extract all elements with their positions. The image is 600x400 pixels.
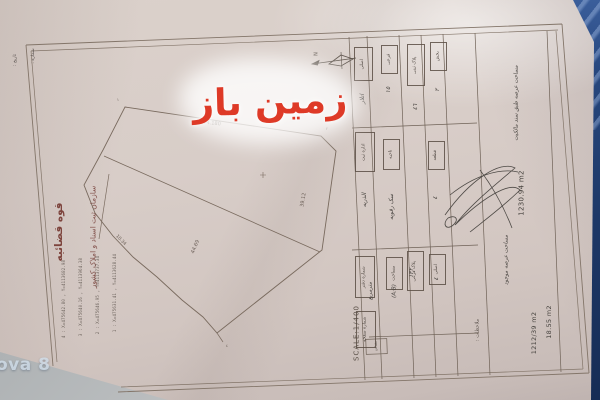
- cell-value: الذریه: [362, 193, 368, 207]
- table-cell-box: ناحیه: [383, 139, 400, 170]
- cell-label: مساحت: [392, 266, 397, 281]
- cell-label: پلاک ثبتی: [414, 56, 419, 73]
- area-value-3: 1212/39 m2: [531, 312, 538, 355]
- area-value-1: 1230.94 m2: [519, 170, 526, 215]
- area-note-1: مساحت عرصه طبق سند مالکیت: [514, 65, 520, 140]
- cell-value: ٤: [434, 277, 440, 280]
- scale-text: SCALE:1/400: [354, 305, 361, 361]
- vertex-mark: ٢: [326, 127, 328, 131]
- table-cell-box: پلاک ثبتی: [407, 44, 425, 86]
- cell-value: ١٣٢: [409, 268, 415, 278]
- cell-value: ١٥: [386, 87, 392, 93]
- cell-label: ناحیه: [389, 150, 394, 159]
- area-note-2: مساحت عرصه موجود: [504, 235, 510, 285]
- vertex-mark: ١: [117, 98, 119, 102]
- cell-label: شماره صفحه: [364, 317, 369, 342]
- cell-label: بخش: [436, 52, 441, 62]
- table-cell-box: اصلی: [354, 47, 373, 81]
- date-label: تاریخ :: [14, 54, 19, 66]
- cell-value: مترمربع: [368, 282, 374, 300]
- plot-polygon: [84, 107, 336, 342]
- table-cell-box: اداره ثبت: [355, 132, 375, 172]
- cell-label: اصلی: [361, 59, 366, 69]
- compass-north-label: N: [315, 52, 320, 56]
- cell-value: ٤٦: [413, 104, 419, 110]
- table-cell-box: قطعه: [428, 141, 445, 170]
- remarks-label: ملاحظات :: [476, 319, 481, 341]
- table-cell-box: فرعی: [381, 45, 398, 74]
- cell-label: فرعی: [387, 54, 392, 65]
- cell-label: اصلی: [435, 264, 440, 274]
- cell-value: ٤: [433, 196, 439, 199]
- letterhead-line-1: قوه قضائیه: [54, 202, 65, 261]
- coordinate-row: 4 : X=475642.80 , Y=4113682.98: [62, 260, 66, 338]
- scale-box-label: مقیاس: [374, 341, 378, 351]
- cell-value: سک رقویه: [389, 194, 395, 220]
- table-cell-box: بخش: [430, 42, 447, 71]
- number-label: شماره :: [32, 48, 37, 63]
- coordinate-row: 3 : X=475640.16 , Y=4113964.38: [79, 258, 83, 336]
- photo-of-cadastral-document: قوه قضائیه سازمان ثبت اسناد و املاک کشور…: [0, 0, 600, 400]
- area-value-2: 18.55 m2: [546, 305, 553, 339]
- cell-label: قطعه: [434, 150, 439, 160]
- cell-label: اداره ثبت: [363, 143, 368, 161]
- camera-watermark: ova 8: [0, 355, 50, 375]
- cell-value: (A:B): [392, 284, 398, 298]
- cell-value: ٢: [435, 88, 441, 91]
- cell-value: اتلار: [360, 94, 366, 104]
- vertex-mark: ٤: [226, 344, 228, 348]
- coordinate-row: 1 : X=475631.41 , Y=4113628.44: [113, 254, 117, 332]
- coordinate-row: 2 : X=475646.95 , Y=4113737.34: [96, 256, 100, 334]
